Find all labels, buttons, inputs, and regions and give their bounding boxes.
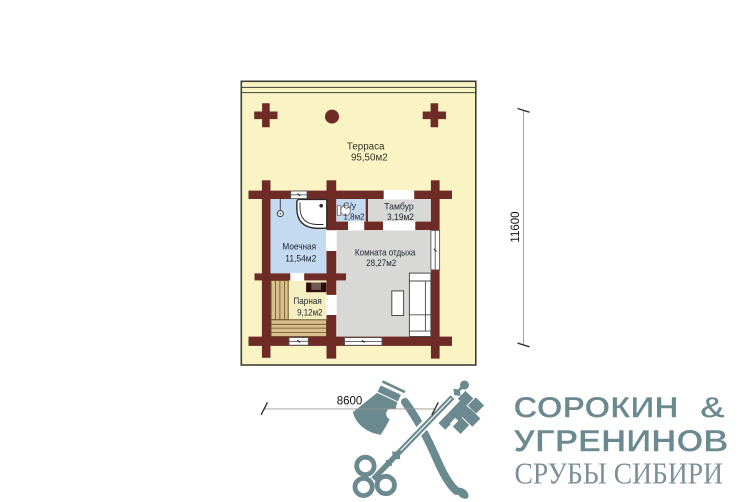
svg-text:СРУБЫ СИБИРИ: СРУБЫ СИБИРИ — [515, 456, 724, 491]
svg-text:11,54м2: 11,54м2 — [285, 254, 316, 264]
svg-text:С/у: С/у — [343, 200, 357, 210]
svg-text:Терраса: Терраса — [347, 141, 385, 152]
svg-text:11600: 11600 — [510, 211, 522, 242]
svg-text:Комната отдыха: Комната отдыха — [355, 247, 416, 257]
svg-text:1,8м2: 1,8м2 — [344, 212, 365, 222]
svg-text:Парная: Парная — [293, 296, 321, 306]
svg-text:8600: 8600 — [337, 396, 363, 408]
svg-text:9,12м2: 9,12м2 — [297, 308, 322, 318]
svg-text:Моечная: Моечная — [282, 242, 316, 252]
svg-text:СОРОКИН: СОРОКИН — [514, 391, 679, 424]
svg-text:УГРЕНИНОВ: УГРЕНИНОВ — [514, 422, 729, 458]
svg-text:&: & — [700, 391, 726, 424]
svg-text:Тамбур: Тамбур — [384, 202, 414, 212]
svg-text:3,19м2: 3,19м2 — [387, 212, 414, 222]
svg-text:28,27м2: 28,27м2 — [366, 258, 396, 268]
svg-text:95,50м2: 95,50м2 — [351, 153, 388, 164]
